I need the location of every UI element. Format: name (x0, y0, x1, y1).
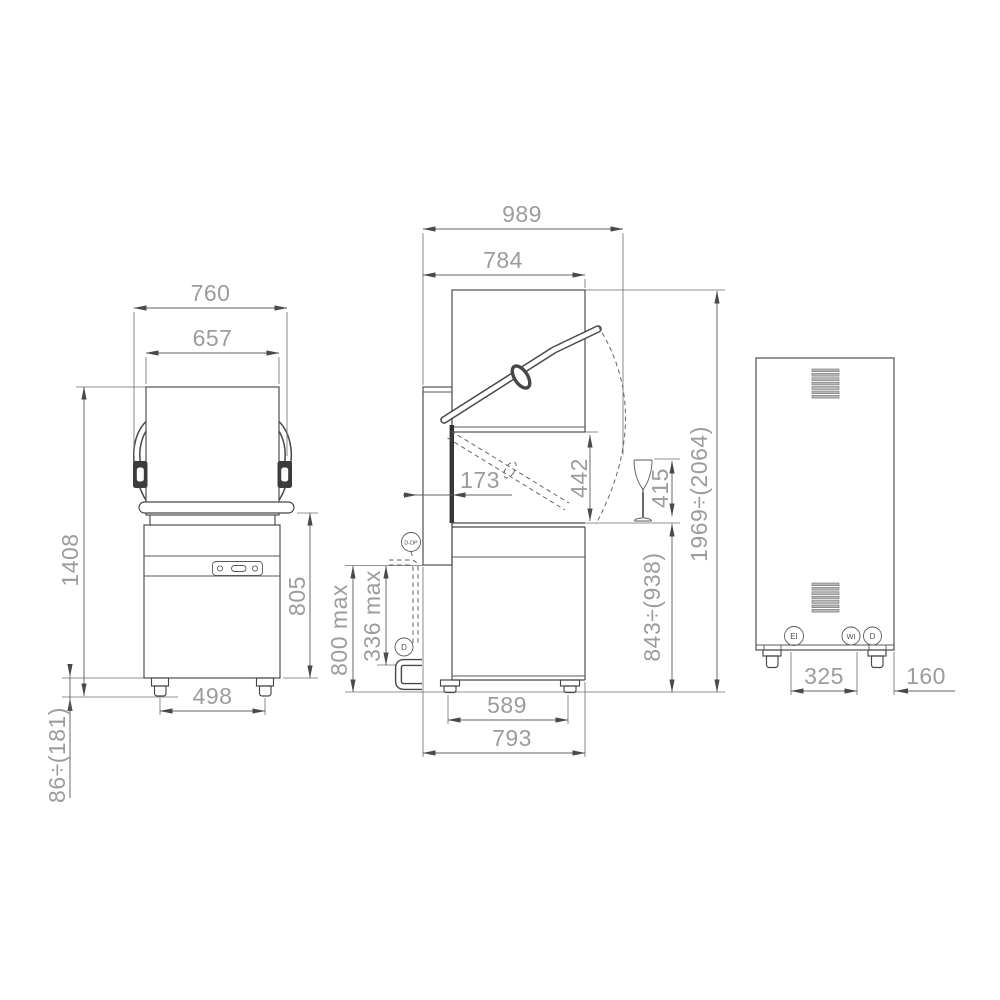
dim-label-589: 589 (487, 692, 527, 718)
hood-front (146, 387, 279, 515)
base-cabinet-front (144, 525, 280, 678)
dim-side-drain-run: 336 max (359, 566, 386, 665)
handle-pivot-right (278, 461, 293, 488)
vent-grille-top-icon (812, 369, 839, 398)
dim-label-86-181: 86÷(181) (44, 707, 70, 803)
hood-handle-bar (139, 502, 294, 513)
dim-side-drain-max: 800 max (326, 566, 353, 692)
dim-label-415: 415 (647, 468, 673, 508)
connection-ei-label: EI (790, 632, 798, 641)
dishwasher-three-view-drawing: 760 657 1408 805 498 86÷(181) (0, 0, 1000, 1000)
technical-drawing-canvas: 760 657 1408 805 498 86÷(181) (0, 0, 1000, 1000)
dim-label-173: 173 (460, 467, 500, 493)
dim-label-784: 784 (483, 247, 523, 273)
dim-label-805: 805 (284, 576, 310, 616)
hood-side-raised (452, 290, 585, 432)
connection-ddp-label: D-DP (404, 540, 418, 546)
dim-label-1408: 1408 (57, 533, 83, 586)
dim-label-325: 325 (804, 663, 844, 689)
dim-label-442: 442 (566, 458, 592, 498)
dim-label-336-max: 336 max (359, 570, 385, 662)
dim-label-843-938: 843÷(938) (639, 552, 665, 661)
dim-label-989: 989 (502, 201, 542, 227)
dim-label-657: 657 (193, 325, 233, 351)
connection-d-back-label: D (870, 632, 876, 641)
dim-label-1969-2064: 1969÷(2064) (686, 426, 712, 562)
connection-d-side-label: D (401, 643, 407, 652)
handle-pivot-left (133, 461, 148, 488)
vent-grille-bottom-icon (812, 583, 839, 612)
dim-label-793: 793 (492, 725, 532, 751)
dim-label-800-max: 800 max (326, 584, 352, 676)
dim-label-498: 498 (193, 683, 233, 709)
connection-wi-label: WI (846, 632, 855, 641)
dim-label-160: 160 (906, 663, 946, 689)
dim-label-760: 760 (191, 280, 231, 306)
